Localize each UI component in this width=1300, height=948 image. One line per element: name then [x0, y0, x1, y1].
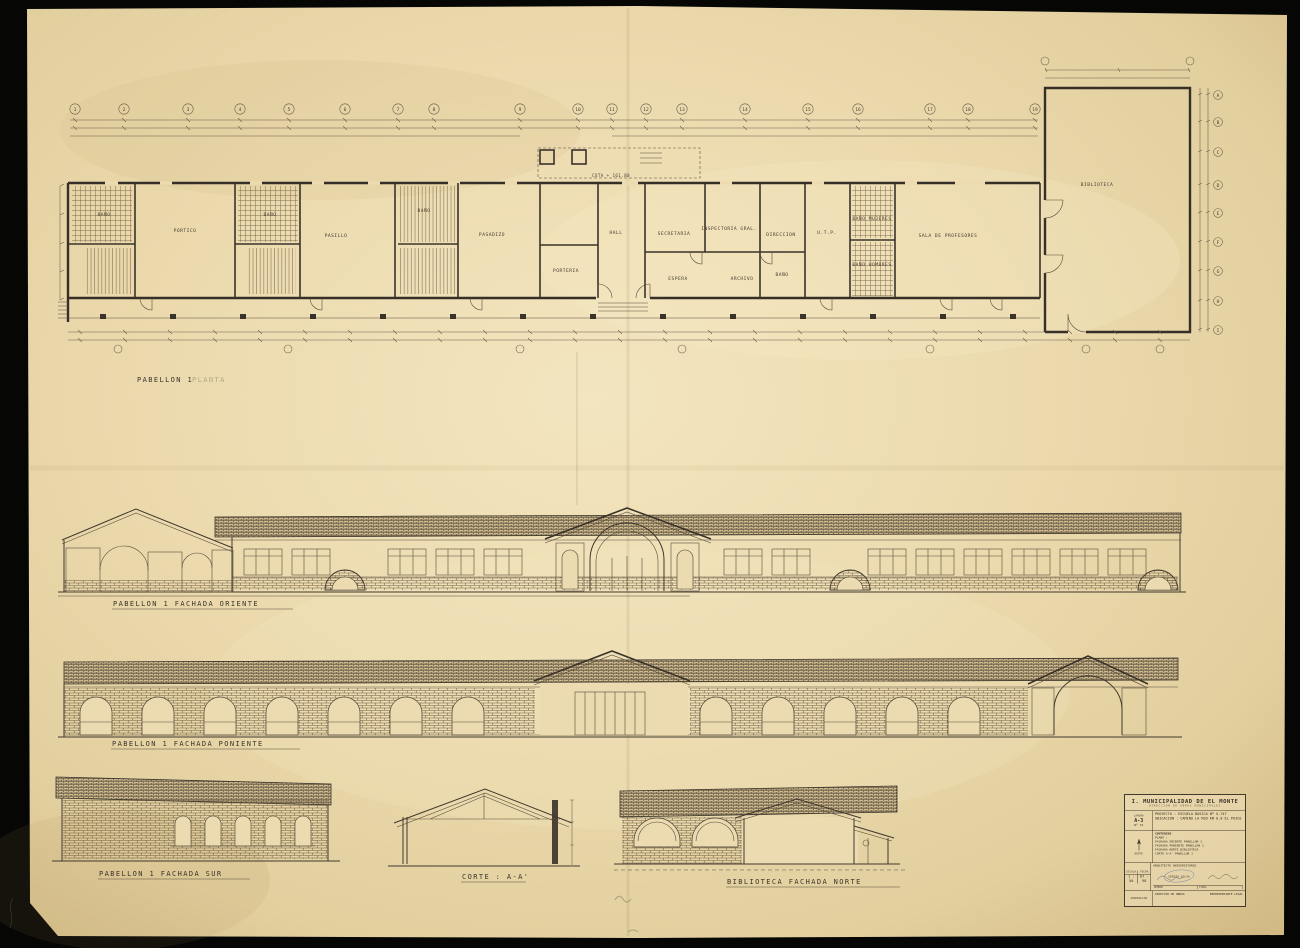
arch-opening [824, 697, 856, 735]
arch-opening [266, 697, 298, 735]
arch-opening [142, 697, 174, 735]
room-label: BAÑO HOMBRES [852, 261, 891, 268]
grid-bubble-label: 4 [239, 107, 242, 113]
arch-opening [886, 697, 918, 735]
bathroom-hatch [852, 186, 893, 238]
arch-opening [700, 697, 732, 735]
project-cell: PROYECTO : ESCUELA BASICA Nº G-747 UBICA… [1153, 811, 1245, 831]
room-label: PASADIZO [479, 232, 505, 238]
arched-window [295, 816, 311, 846]
room-label: PORTERIA [553, 268, 579, 274]
approval-left: DIRECTOR DE OBRAS [1155, 893, 1185, 906]
arch-opening [452, 697, 484, 735]
grid-bubble-label: 9 [519, 107, 522, 113]
date-label: FECHA [1138, 870, 1151, 874]
walkway-post [940, 314, 946, 319]
title-block-header: I. MUNICIPALIDAD DE EL MONTE DIRECCION D… [1125, 795, 1245, 811]
contents-cell: CONTENIDO PLANO : FACHADA ORIENTE PABELL… [1153, 831, 1245, 863]
arched-window [205, 816, 221, 846]
room-label: DIRECCION [766, 232, 795, 238]
wall-section-poche [552, 800, 558, 864]
room-label: U.T.P. [817, 230, 837, 236]
grid-bubble-label: 6 [344, 107, 347, 113]
grid-bubble-label: 8 [433, 107, 436, 113]
walkway-post [310, 314, 316, 319]
architect-cell: ARQUITECTO UNIVERSITARIO SERGIO SILVA NO… [1151, 863, 1245, 891]
sig-sublabel: NOMBRE [1153, 886, 1198, 889]
title-block: I. MUNICIPALIDAD DE EL MONTE DIRECCION D… [1124, 794, 1246, 907]
grid-bubble-label: 18 [965, 107, 971, 113]
room-label: BIBLIOTECA [1081, 182, 1114, 188]
date-value: 07 - 98 [1138, 874, 1151, 883]
grid-bubble-label: A [1217, 93, 1220, 99]
grid-bubble-label: 7 [397, 107, 400, 113]
grid-bubble-label: 12 [643, 107, 649, 113]
walkway-post [170, 314, 176, 319]
plan-caption-faded: PLANTA [192, 376, 226, 384]
approval-right: REPRESENTANTE LEGAL [1210, 893, 1243, 906]
roof-tiles [620, 786, 897, 817]
arch-opening [80, 697, 112, 735]
grid-bubble-label: 11 [609, 107, 615, 113]
room-label: ESPERA [668, 276, 688, 282]
approval-signatories: DIRECTOR DE OBRAS REPRESENTANTE LEGAL [1153, 891, 1245, 906]
grid-bubble-label: G [1217, 269, 1220, 275]
room-label: INSPECTORIA GRAL. [701, 226, 757, 232]
project-location: UBICACION : CAMINO LA RED KM 0.8 EL PAIC… [1155, 817, 1243, 822]
grid-bubble-label: 2 [123, 107, 126, 113]
walkway-post [380, 314, 386, 319]
grid-bubble-label: C [1217, 150, 1220, 156]
walkway-post [590, 314, 596, 319]
gable-wall [540, 684, 688, 735]
arched-niche [677, 550, 693, 589]
floor-hatch [248, 248, 296, 294]
signature-scribble [1208, 874, 1238, 879]
arch-opening [762, 697, 794, 735]
grid-bubble-label: D [1217, 183, 1220, 189]
paper-stain [60, 60, 580, 200]
walkway-post [450, 314, 456, 319]
grid-bubble-label: B [1217, 120, 1220, 126]
signature-sublabels: NOMBRE FIRMA [1153, 886, 1243, 890]
department-subtitle: DIRECCION DE OBRAS MUNICIPALES [1149, 805, 1221, 808]
biblioteca-caption: BIBLIOTECA FACHADA NORTE [727, 878, 862, 886]
blueprint-drawing: COTA + 161.80 [0, 0, 1300, 948]
grid-bubble-label: 16 [855, 107, 861, 113]
brick-sill-band [232, 577, 1178, 590]
room-label: BAÑO [775, 271, 788, 278]
arch-opening [390, 697, 422, 735]
signatures-and-stamp: SERGIO SILVA [1153, 868, 1243, 885]
walkway-post [800, 314, 806, 319]
room-label: BAÑO [97, 211, 110, 218]
room-label: HALL [609, 230, 622, 236]
approval-cell: APROBACION [1125, 891, 1153, 906]
floor-hatch [400, 248, 456, 294]
brick-wall [63, 800, 328, 859]
grid-bubble-label: 15 [805, 107, 811, 113]
grid-bubble-label: 1 [74, 107, 77, 113]
grid-bubble-label: 3 [187, 107, 190, 113]
north-label: NORTE [1135, 853, 1143, 857]
scale-value: 1 : 50 [1125, 874, 1138, 883]
sig-sublabel: FIRMA [1198, 886, 1243, 889]
arch-opening [948, 697, 980, 735]
bathroom-hatch [852, 242, 893, 296]
grid-bubble-label: 13 [679, 107, 685, 113]
room-label: PASILLO [325, 233, 348, 239]
scale-date-cell: ESCALA FECHA 1 : 50 07 - 98 [1125, 863, 1151, 891]
lamina-cell: LAMINA A-3 Nº 15 [1125, 811, 1153, 831]
grid-bubble-label: E [1217, 211, 1220, 217]
scanned-architectural-sheet: { "palette": { "paper": "#e8d6a8", "ink"… [0, 0, 1300, 948]
facade-poniente: PABELLON 1 FACHADA PONIENTE [58, 651, 1182, 749]
grid-bubble-label: 5 [288, 107, 291, 113]
grid-bubble-label: H [1217, 299, 1220, 305]
floor-hatch [85, 248, 133, 294]
north-cell: NORTE [1125, 831, 1153, 863]
sur-caption: PABELLON 1 FACHADA SUR [99, 870, 223, 878]
approval-label: APROBACION [1130, 897, 1147, 901]
floor-hatch [400, 186, 456, 242]
walkway-post [520, 314, 526, 319]
room-label: BAÑO [417, 207, 430, 214]
walkway-post [100, 314, 106, 319]
oriente-caption: PABELLON 1 FACHADA ORIENTE [113, 600, 259, 608]
room-label: BAÑO [263, 211, 276, 218]
arched-window [265, 816, 281, 846]
room-label: BAÑO MUJERES [852, 215, 891, 222]
arch-opening [204, 697, 236, 735]
room-label: SECRETARIA [658, 231, 691, 237]
room-label: SALA DE PROFESORES [919, 233, 978, 239]
cota-annotation: COTA + 161.80 [592, 173, 630, 178]
north-arrow-icon [1134, 838, 1144, 853]
grid-bubble-label: I [1217, 328, 1220, 334]
walkway-post [730, 314, 736, 319]
arched-window [175, 816, 191, 846]
corte-caption: CORTE : A-A' [462, 873, 529, 881]
grid-bubble-label: 19 [1032, 107, 1038, 113]
signature-zone: SERGIO SILVA [1153, 868, 1243, 885]
walkway-post [870, 314, 876, 319]
grid-bubble-label: F [1217, 240, 1220, 246]
walkway-post [660, 314, 666, 319]
roof-tiles [64, 658, 1178, 684]
poniente-caption: PABELLON 1 FACHADA PONIENTE [112, 740, 264, 748]
grid-bubble-label: 14 [742, 107, 748, 113]
grid-bubble-label: 17 [927, 107, 933, 113]
arched-window [235, 816, 251, 846]
brick-base [64, 580, 233, 592]
walkway-post [1010, 314, 1016, 319]
contents-line: CORTE A-A' PABELLON 1 [1155, 852, 1243, 856]
plan-caption: PABELLON 1 [137, 376, 193, 384]
arched-niche [562, 550, 578, 589]
arch-opening [328, 697, 360, 735]
gable-wall [742, 817, 858, 864]
grid-bubble-label: 10 [575, 107, 581, 113]
lamina-label: LAMINA [1134, 814, 1144, 818]
sheet-number: Nº 15 [1134, 823, 1143, 827]
scale-label: ESCALA [1125, 870, 1138, 874]
walkway-post [240, 314, 246, 319]
room-label: ARCHIVO [731, 276, 754, 282]
stamp-name: SERGIO SILVA [1168, 875, 1190, 879]
room-label: PORTICO [174, 228, 197, 234]
